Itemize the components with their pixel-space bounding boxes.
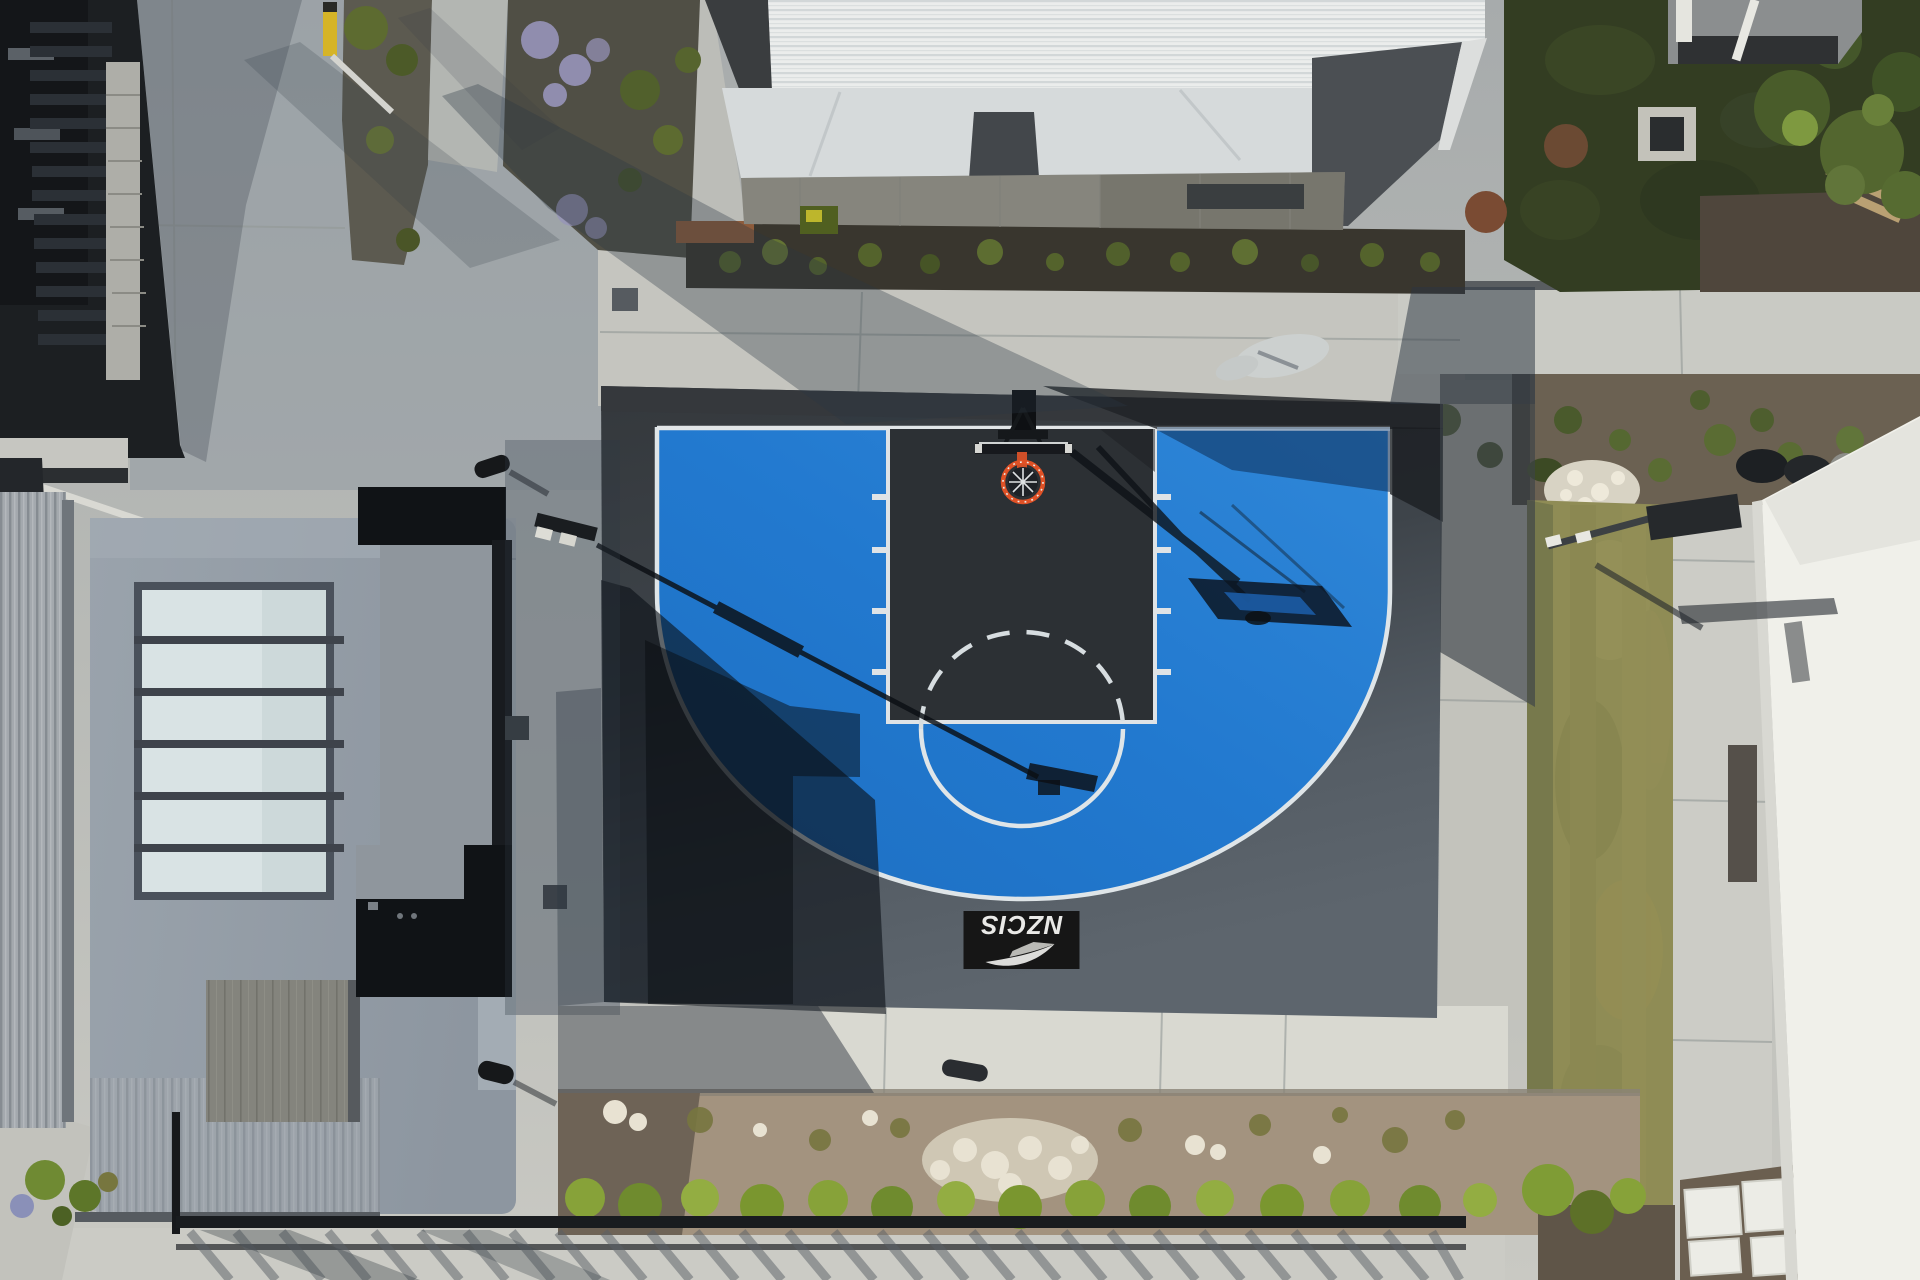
svg-text:NZCIS: NZCIS xyxy=(980,910,1063,940)
